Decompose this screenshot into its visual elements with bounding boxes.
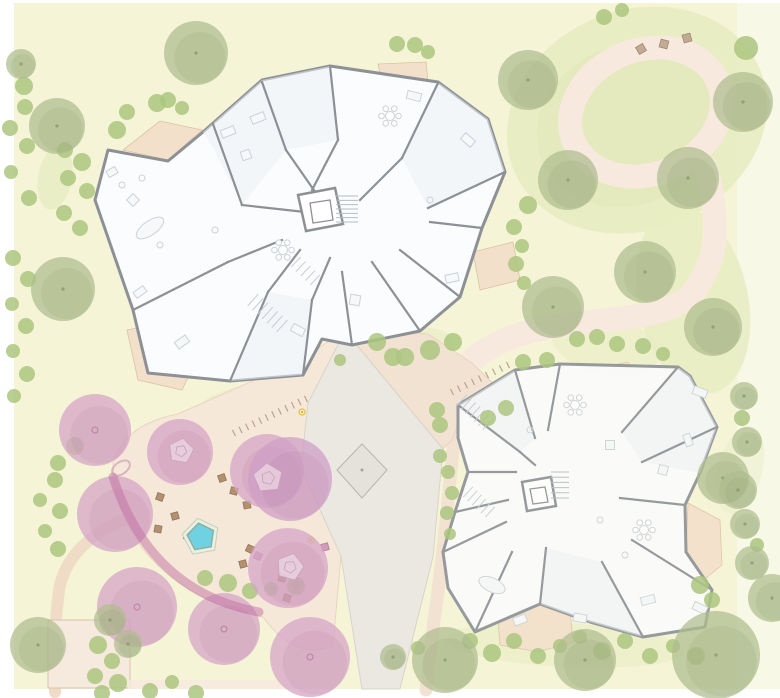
bush (60, 170, 76, 186)
bush (72, 220, 88, 236)
bush (197, 570, 213, 586)
bush (368, 333, 386, 351)
bush (87, 668, 103, 684)
bush (539, 352, 555, 368)
bush (642, 648, 658, 664)
bush (530, 648, 546, 664)
bush (109, 674, 127, 692)
bush (38, 524, 52, 538)
bush (691, 576, 709, 594)
bush (596, 9, 612, 25)
bush (635, 338, 651, 354)
bush (433, 449, 447, 463)
bush (79, 183, 95, 199)
bush (2, 120, 18, 136)
bush (429, 402, 445, 418)
bush (5, 297, 19, 311)
bush (609, 336, 625, 352)
bush (498, 400, 514, 416)
bush (5, 250, 21, 266)
bush (175, 101, 189, 115)
bush (50, 455, 66, 471)
bush (734, 410, 750, 426)
bush (589, 329, 605, 345)
bush (656, 347, 670, 361)
bush (334, 354, 346, 366)
bush (15, 77, 33, 95)
bush (515, 239, 529, 253)
bush (19, 366, 35, 382)
bush (421, 45, 435, 59)
site-plan-page (0, 0, 780, 698)
bush (73, 153, 91, 171)
bush (444, 528, 456, 540)
bush (569, 331, 585, 347)
bush (17, 99, 33, 115)
bush (441, 465, 455, 479)
bush (508, 256, 524, 272)
bush (160, 92, 176, 108)
bush (165, 675, 179, 689)
bush (19, 138, 35, 154)
bush (440, 506, 454, 520)
bush (432, 417, 448, 433)
bush (18, 318, 34, 334)
bush (6, 344, 20, 358)
bush (47, 472, 63, 488)
bush (483, 644, 501, 662)
bush (89, 636, 107, 654)
building-south (443, 362, 722, 652)
bush (445, 486, 459, 500)
bush (704, 592, 720, 608)
bush (104, 653, 120, 669)
bush (21, 190, 37, 206)
bush (389, 36, 405, 52)
bush (420, 340, 440, 360)
bush (4, 165, 18, 179)
bush (52, 503, 68, 519)
site-plan-drawing (0, 0, 780, 698)
bush (506, 219, 522, 235)
bush (119, 104, 135, 120)
bush (396, 348, 414, 366)
bush (615, 3, 629, 17)
bush (480, 410, 496, 426)
bush (617, 633, 633, 649)
bush (108, 121, 126, 139)
bush (219, 574, 237, 592)
bush (7, 389, 21, 403)
bush (506, 633, 522, 649)
bush (56, 205, 72, 221)
bush (444, 333, 462, 351)
bush (50, 541, 66, 557)
bush (519, 196, 537, 214)
bush (407, 37, 423, 53)
bush (734, 36, 758, 60)
bush (33, 493, 47, 507)
bush (515, 354, 531, 370)
